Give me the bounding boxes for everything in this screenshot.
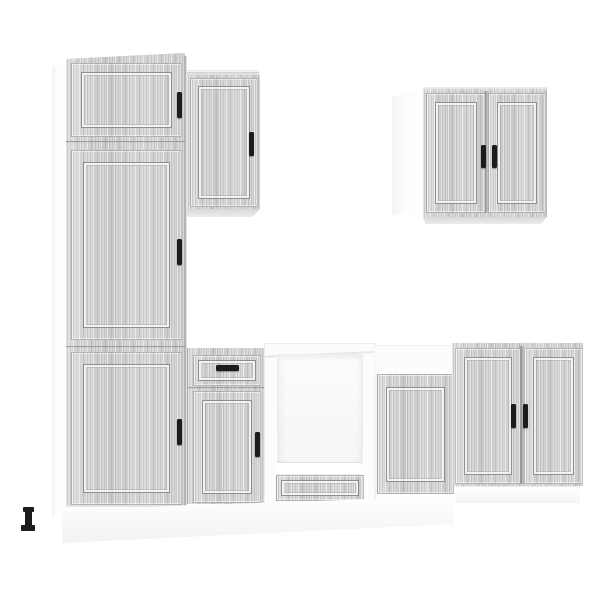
tall-cabinet-upper-door xyxy=(71,63,182,137)
wall-cabinet-double-underside xyxy=(423,217,547,224)
wall-cabinet-double-left-door xyxy=(426,93,486,213)
cabinet-foot-base xyxy=(21,525,35,531)
tall-cabinet-upper-door-panel xyxy=(81,72,172,128)
base-cabinet-rail xyxy=(188,387,265,389)
base-cabinet-double-left-door-panel xyxy=(464,357,512,475)
tall-cabinet-middle-door-handle xyxy=(177,239,182,265)
tall-cabinet-side-panel xyxy=(52,60,66,517)
base-cabinet-single-door-panel xyxy=(386,387,445,482)
cabinet-foot-stem xyxy=(25,511,32,526)
wall-cabinet-single-underside xyxy=(187,209,260,217)
base-cabinet-single-door xyxy=(377,374,454,494)
base-cabinet-double-left-handle xyxy=(511,404,516,428)
wall-cabinet-double-right-door-panel xyxy=(497,102,537,204)
wall-cabinet-double-right-handle xyxy=(492,145,497,168)
base-cabinet-door-panel xyxy=(202,400,252,494)
base-cabinet-double-right-door-panel xyxy=(533,357,574,475)
base-cabinet-double-right-handle xyxy=(523,404,528,428)
tall-cabinet xyxy=(66,53,185,507)
oven-niche-shelf xyxy=(277,462,361,476)
tall-cabinet-lower-door-handle xyxy=(177,419,182,445)
oven-niche-opening xyxy=(277,354,363,464)
tall-cabinet-upper-door-handle xyxy=(177,92,182,118)
wall-cabinet-double-left-door-panel xyxy=(435,102,477,204)
base-cabinet-double-right-door xyxy=(524,348,583,484)
base-cabinet-double xyxy=(452,343,583,486)
wall-cabinet-double-side-panel xyxy=(392,89,423,216)
kitchen-cabinet-set-photo xyxy=(0,0,600,600)
base-cabinet-single-carcass xyxy=(374,345,454,377)
tall-cabinet-middle-door-panel xyxy=(83,162,170,328)
wall-cabinet-single-door xyxy=(190,78,258,207)
tall-cabinet-rail-2 xyxy=(66,346,185,348)
base-cabinet-drawer-handle xyxy=(216,365,239,371)
wall-cabinet-single-door-panel xyxy=(198,86,250,199)
tall-cabinet-lower-door-panel xyxy=(83,364,170,493)
oven-housing-drawer-panel xyxy=(281,480,359,496)
oven-housing-drawer-front xyxy=(276,475,364,501)
base-cabinet-drawer-door xyxy=(187,348,265,504)
base-cabinet-double-plinth xyxy=(456,486,580,503)
base-cabinet-door xyxy=(193,391,261,503)
tall-cabinet-rail-1 xyxy=(66,141,185,143)
tall-cabinet-lower-door xyxy=(71,352,182,505)
wall-cabinet-single-handle xyxy=(249,132,254,156)
wall-cabinet-double-left-handle xyxy=(481,145,486,168)
base-cabinet-door-handle xyxy=(255,432,260,457)
tall-cabinet-middle-door xyxy=(71,150,182,340)
oven-housing-cabinet xyxy=(264,343,376,506)
